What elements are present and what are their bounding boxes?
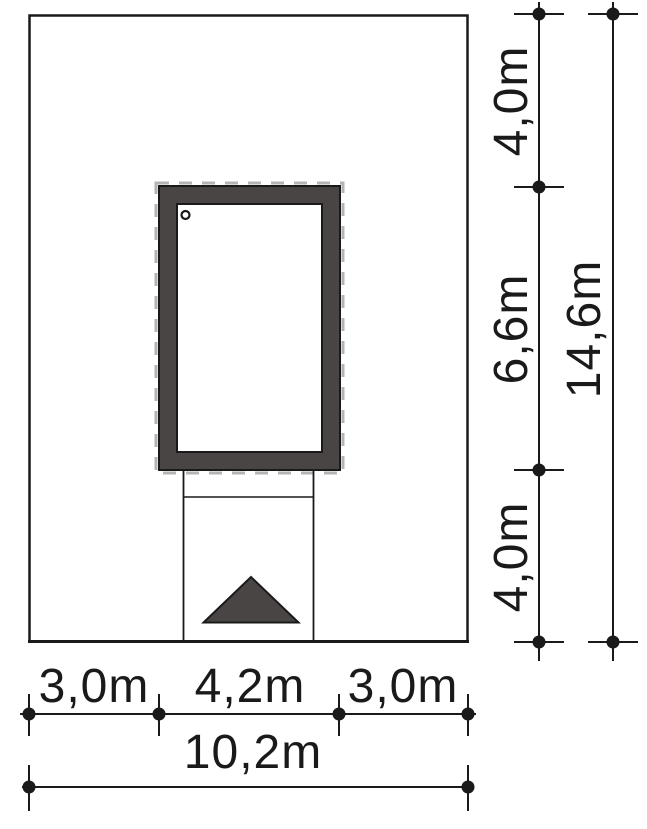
dim-label-building-depth: 6,6m	[485, 274, 538, 385]
dim-dot	[462, 708, 475, 721]
dim-label-left-setback: 3,0m	[39, 660, 150, 713]
dim-dot	[23, 708, 36, 721]
dim-label-total-depth: 14,6m	[558, 260, 611, 398]
dim-label-bottom-setback: 4,0m	[485, 502, 538, 613]
building-interior	[177, 204, 322, 452]
dim-label-top-setback: 4,0m	[485, 46, 538, 157]
dim-dot	[23, 781, 36, 794]
dim-dot	[153, 708, 166, 721]
dimension-vertical-group: 4,0m 6,6m 4,0m 14,6m	[485, 2, 638, 661]
dim-label-building-width: 4,2m	[195, 660, 306, 713]
dim-dot	[533, 464, 546, 477]
dimension-horizontal-group: 3,0m 4,2m 3,0m 10,2m	[20, 660, 476, 811]
dim-dot	[607, 8, 620, 21]
dim-label-right-setback: 3,0m	[348, 660, 459, 713]
dim-dot	[607, 636, 620, 649]
dim-dot	[462, 781, 475, 794]
site-plan-drawing: 4,0m 6,6m 4,0m 14,6m 3,0m 4,2m 3,0m 10,2…	[0, 0, 647, 829]
driveway	[184, 470, 314, 641]
entrance-arrow-icon	[204, 577, 299, 623]
dim-dot	[533, 8, 546, 21]
dim-dot	[333, 708, 346, 721]
site-plan-canvas: 4,0m 6,6m 4,0m 14,6m 3,0m 4,2m 3,0m 10,2…	[0, 0, 647, 829]
dim-dot	[533, 636, 546, 649]
dim-dot	[533, 181, 546, 194]
dim-label-total-width: 10,2m	[184, 726, 322, 779]
